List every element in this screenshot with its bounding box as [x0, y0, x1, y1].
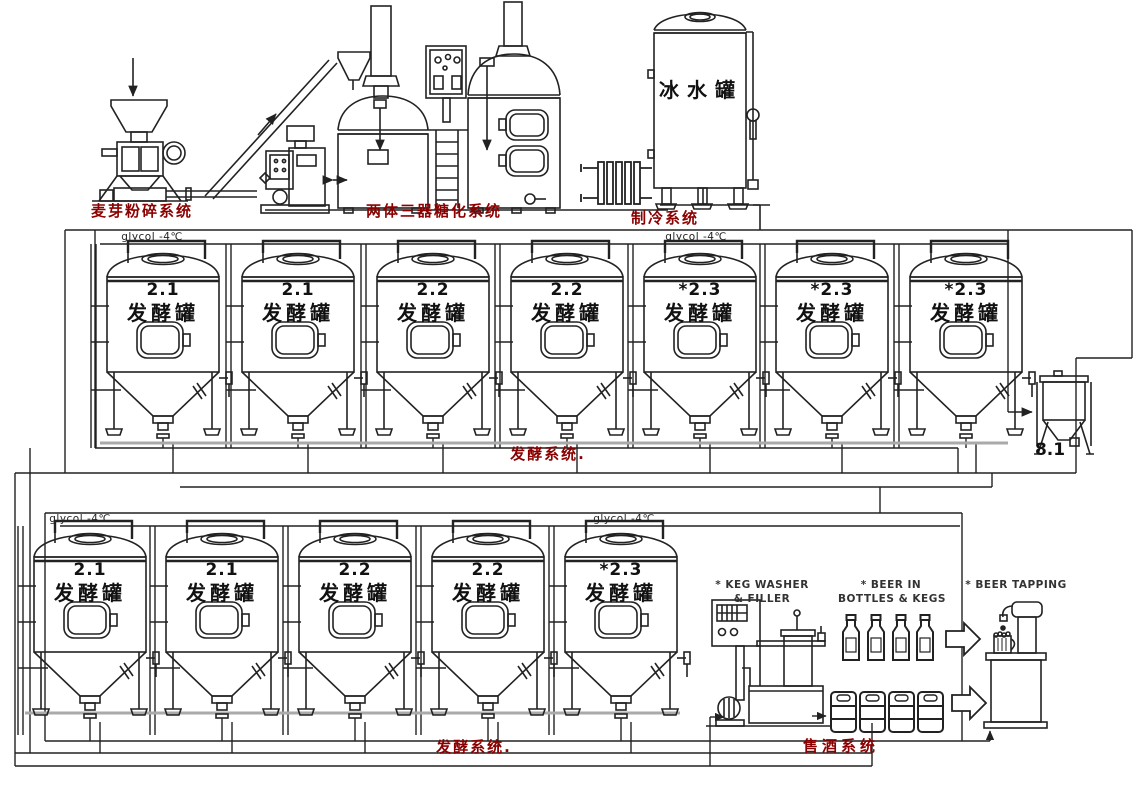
beer-mug-icon	[994, 632, 1015, 653]
tank-name: 发酵罐	[780, 302, 884, 325]
label-refrigeration-system: 制冷系统	[626, 210, 704, 227]
beer-tapping-tower	[984, 602, 1047, 728]
bottle-icon	[917, 615, 933, 660]
tank-name: 发酵罐	[111, 302, 215, 325]
tank-number: *2.3	[576, 561, 666, 581]
tank-name: 发酵罐	[914, 302, 1018, 325]
keg-icon	[889, 692, 914, 732]
label-glycol-row1-left: glycol -4℃	[116, 231, 188, 243]
bottle-icon	[893, 615, 909, 660]
brewery-process-diagram: 麦芽粉碎系统 两体三器糖化系统 制冷系统 冰水罐 glycol -4℃ glyc…	[0, 0, 1134, 789]
tank-number: 2.1	[177, 561, 267, 581]
label-fermentation-system-row2: 发酵系统.	[424, 739, 524, 756]
tank-number: *2.3	[655, 281, 745, 301]
bottle-icon	[843, 615, 859, 660]
refrigeration-heat-exchanger	[581, 162, 652, 204]
tank-number: *2.3	[921, 281, 1011, 301]
tank-number: 2.2	[443, 561, 533, 581]
tank-number: *2.3	[787, 281, 877, 301]
tank-name: 发酵罐	[648, 302, 752, 325]
tank-number: 2.2	[388, 281, 478, 301]
label-glycol-row2-left: glycol -4℃	[44, 513, 116, 525]
tank-name: 发酵罐	[515, 302, 619, 325]
keg-icon	[831, 692, 856, 732]
keg-washer-filler	[706, 600, 830, 726]
label-fermentation-system-row1: 发酵系统.	[498, 446, 598, 463]
brewhouse-control-panel	[426, 46, 466, 122]
beer-kegs	[812, 692, 943, 732]
label-keg-washer-line1: * KEG WASHER	[710, 579, 814, 591]
label-beer-tapping: * BEER TAPPING	[960, 579, 1072, 591]
tank-number: 2.2	[522, 281, 612, 301]
pump-control-unit	[260, 126, 347, 213]
malt-mill	[92, 58, 257, 201]
keg-icon	[918, 692, 943, 732]
tank-number: 2.1	[253, 281, 343, 301]
tank-name: 发酵罐	[436, 582, 540, 605]
label-keg-washer-line2: & FILLER	[710, 593, 814, 605]
label-beer-sales-system: 售酒系统	[795, 738, 887, 755]
right-flow-arrow-icon	[946, 623, 980, 655]
label-yeast-tank-number: 8.1	[1028, 441, 1072, 461]
tank-name: 发酵罐	[569, 582, 673, 605]
brewhouse-ladder	[428, 130, 468, 208]
tank-number: 2.1	[45, 561, 135, 581]
label-ice-water-tank: 冰水罐	[658, 79, 744, 102]
tank-name: 发酵罐	[38, 582, 142, 605]
label-beer-in-line1: * BEER IN	[838, 579, 944, 591]
label-brewhouse-system: 两体三器糖化系统	[358, 203, 510, 220]
label-glycol-row2-right: glycol -4℃	[588, 513, 660, 525]
beer-bottles	[843, 615, 933, 660]
label-malt-mill-system: 麦芽粉碎系统	[80, 203, 204, 220]
bottle-icon	[868, 615, 884, 660]
tank-number: 2.1	[118, 281, 208, 301]
tank-name: 发酵罐	[246, 302, 350, 325]
right-flow-arrow-icon	[952, 687, 986, 719]
cyclone-hopper	[338, 52, 370, 80]
tank-name: 发酵罐	[381, 302, 485, 325]
tank-number: 2.2	[310, 561, 400, 581]
label-beer-in-line2: BOTTLES & KEGS	[838, 593, 944, 605]
diagram-lineart	[0, 0, 1134, 789]
tank-name: 发酵罐	[303, 582, 407, 605]
ice-water-tank	[648, 13, 770, 231]
label-glycol-row1-right: glycol -4℃	[660, 231, 732, 243]
tank-name: 发酵罐	[170, 582, 274, 605]
